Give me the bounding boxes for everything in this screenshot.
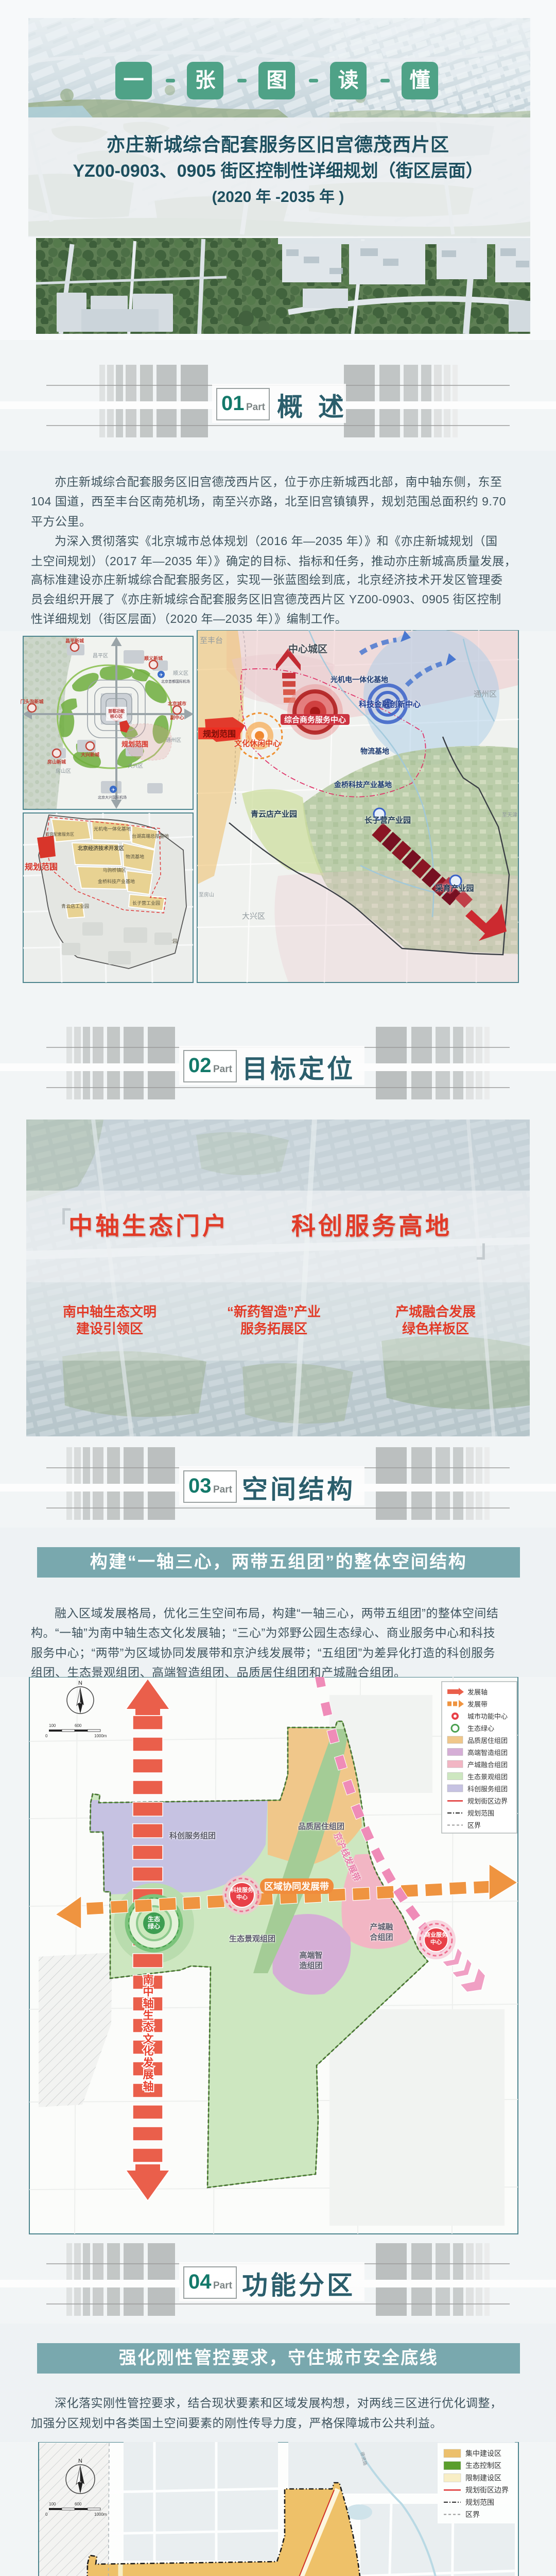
svg-text:门头沟新城: 门头沟新城 bbox=[20, 699, 43, 704]
svg-text:旧宫配套服务区: 旧宫配套服务区 bbox=[45, 832, 74, 837]
svg-text:长子营产业园: 长子营产业园 bbox=[364, 816, 411, 825]
svg-text:生态: 生态 bbox=[148, 1915, 160, 1923]
svg-text:生态绿心: 生态绿心 bbox=[467, 1725, 494, 1733]
svg-text:100: 100 bbox=[49, 2502, 56, 2506]
svg-text:规划范围: 规划范围 bbox=[465, 2498, 494, 2506]
svg-text:综合商务服务中心: 综合商务服务中心 bbox=[284, 715, 346, 724]
svg-text:首都功能: 首都功能 bbox=[108, 708, 125, 714]
svg-text:区界: 区界 bbox=[465, 2511, 480, 2519]
svg-text:发展轴: 发展轴 bbox=[467, 1688, 488, 1696]
svg-text:科创服务组团: 科创服务组团 bbox=[169, 1831, 216, 1840]
svg-text:规划街区边界: 规划街区边界 bbox=[465, 2486, 509, 2494]
svg-text:规划范围: 规划范围 bbox=[467, 1809, 494, 1817]
svg-text:规划范围: 规划范围 bbox=[203, 729, 236, 739]
svg-text:北京经济技术开发区: 北京经济技术开发区 bbox=[78, 845, 124, 852]
svg-text:N: N bbox=[78, 2458, 82, 2464]
svg-text:600: 600 bbox=[75, 2502, 82, 2506]
svg-text:至天津: 至天津 bbox=[502, 812, 517, 818]
svg-text:产城融合组团: 产城融合组团 bbox=[467, 1761, 508, 1769]
svg-text:青云店工业园: 青云店工业园 bbox=[61, 903, 89, 909]
svg-text:品质居住组团: 品质居住组团 bbox=[298, 1822, 344, 1831]
svg-text:大兴新城: 大兴新城 bbox=[81, 752, 99, 757]
svg-text:区界: 区界 bbox=[467, 1822, 481, 1829]
svg-text:光机电一体化基地: 光机电一体化基地 bbox=[330, 675, 388, 684]
svg-text:大兴区: 大兴区 bbox=[242, 912, 265, 921]
svg-text:生态控制区: 生态控制区 bbox=[465, 2462, 501, 2470]
svg-text:0: 0 bbox=[45, 1734, 48, 1738]
svg-text:物流基地: 物流基地 bbox=[360, 747, 389, 755]
svg-text:发展带: 发展带 bbox=[467, 1701, 488, 1708]
svg-text:北京城市: 北京城市 bbox=[168, 701, 186, 706]
svg-text:顺义区: 顺义区 bbox=[173, 670, 188, 676]
svg-text:N: N bbox=[78, 1680, 82, 1686]
svg-text:中心: 中心 bbox=[236, 1893, 248, 1901]
svg-text:光机电一体化基地: 光机电一体化基地 bbox=[94, 826, 131, 832]
svg-text:大兴区: 大兴区 bbox=[128, 762, 143, 769]
svg-text:青云店产业园: 青云店产业园 bbox=[251, 809, 297, 819]
svg-text:房山区: 房山区 bbox=[56, 768, 71, 774]
svg-text:科技服务: 科技服务 bbox=[231, 1886, 254, 1893]
svg-text:通州区: 通州区 bbox=[474, 690, 497, 699]
svg-text:采育产业园: 采育产业园 bbox=[435, 884, 474, 893]
svg-text:轴: 轴 bbox=[143, 2080, 154, 2093]
svg-text:长子营工业园: 长子营工业园 bbox=[132, 900, 160, 906]
svg-text:高端智造组团: 高端智造组团 bbox=[467, 1749, 508, 1757]
svg-text:造组团: 造组团 bbox=[299, 1961, 322, 1970]
svg-text:✈: ✈ bbox=[159, 672, 163, 677]
svg-text:物流基地: 物流基地 bbox=[126, 854, 144, 859]
svg-text:态: 态 bbox=[143, 2021, 154, 2033]
svg-text:副中心: 副中心 bbox=[170, 715, 184, 720]
svg-text:中心城区: 中心城区 bbox=[288, 643, 327, 655]
svg-text:展: 展 bbox=[143, 2069, 154, 2081]
svg-text:产城融: 产城融 bbox=[370, 1922, 393, 1931]
svg-text:昌平新城: 昌平新城 bbox=[65, 638, 84, 643]
svg-text:生: 生 bbox=[143, 2009, 154, 2022]
svg-text:高端智: 高端智 bbox=[299, 1951, 322, 1960]
svg-text:科创服务组团: 科创服务组团 bbox=[467, 1785, 508, 1793]
svg-text:至房山: 至房山 bbox=[199, 891, 214, 898]
svg-text:中心: 中心 bbox=[430, 1938, 442, 1945]
svg-text:✈: ✈ bbox=[111, 787, 115, 792]
svg-text:中: 中 bbox=[143, 1986, 154, 1998]
svg-text:金桥科技产业基地: 金桥科技产业基地 bbox=[334, 781, 392, 789]
svg-text:昌平区: 昌平区 bbox=[93, 653, 108, 659]
svg-text:顺义新城: 顺义新城 bbox=[144, 655, 163, 661]
svg-text:通州区: 通州区 bbox=[166, 737, 181, 743]
svg-text:文: 文 bbox=[143, 2033, 154, 2045]
svg-text:北京首都国际机场: 北京首都国际机场 bbox=[161, 679, 190, 684]
svg-text:核心区: 核心区 bbox=[110, 714, 123, 719]
svg-text:南: 南 bbox=[143, 1974, 154, 1986]
svg-text:集中建设区: 集中建设区 bbox=[465, 2449, 501, 2458]
svg-text:至丰台: 至丰台 bbox=[200, 636, 223, 645]
svg-text:绿心: 绿心 bbox=[148, 1922, 160, 1930]
svg-text:金桥科技产业基地: 金桥科技产业基地 bbox=[98, 878, 135, 884]
svg-text:0: 0 bbox=[45, 2512, 48, 2517]
svg-text:生态景观组团: 生态景观组团 bbox=[467, 1773, 508, 1781]
svg-text:商业服务: 商业服务 bbox=[425, 1931, 448, 1938]
svg-text:发: 发 bbox=[143, 2057, 154, 2069]
svg-text:轴: 轴 bbox=[143, 1997, 154, 2010]
svg-text:限制建设区: 限制建设区 bbox=[465, 2473, 501, 2482]
svg-text:100: 100 bbox=[49, 1723, 56, 1728]
svg-text:600: 600 bbox=[75, 1723, 82, 1728]
svg-text:规划街区边界: 规划街区边界 bbox=[467, 1798, 508, 1805]
svg-text:生态景观组团: 生态景观组团 bbox=[229, 1934, 275, 1943]
svg-text:区域协同发展带: 区域协同发展带 bbox=[264, 1881, 329, 1892]
svg-text:马驹桥镇区: 马驹桥镇区 bbox=[102, 867, 126, 873]
svg-text:科技金融创新中心: 科技金融创新中心 bbox=[359, 700, 421, 709]
svg-text:合组团: 合组团 bbox=[369, 1933, 393, 1942]
svg-text:化: 化 bbox=[143, 2045, 154, 2057]
svg-text:城市功能中心: 城市功能中心 bbox=[467, 1713, 508, 1720]
svg-text:台湖高端总部基地: 台湖高端总部基地 bbox=[132, 833, 169, 839]
svg-text:规划范围: 规划范围 bbox=[121, 740, 148, 748]
svg-text:北京大兴国际机场: 北京大兴国际机场 bbox=[98, 795, 127, 800]
svg-text:规划范围: 规划范围 bbox=[25, 862, 58, 872]
svg-text:品质居住组团: 品质居住组团 bbox=[467, 1737, 508, 1744]
svg-text:文化休闲中心: 文化休闲中心 bbox=[234, 739, 281, 748]
svg-text:1000m: 1000m bbox=[94, 2512, 107, 2517]
svg-text:1000m: 1000m bbox=[94, 1734, 107, 1738]
svg-text:房山新城: 房山新城 bbox=[47, 759, 66, 765]
